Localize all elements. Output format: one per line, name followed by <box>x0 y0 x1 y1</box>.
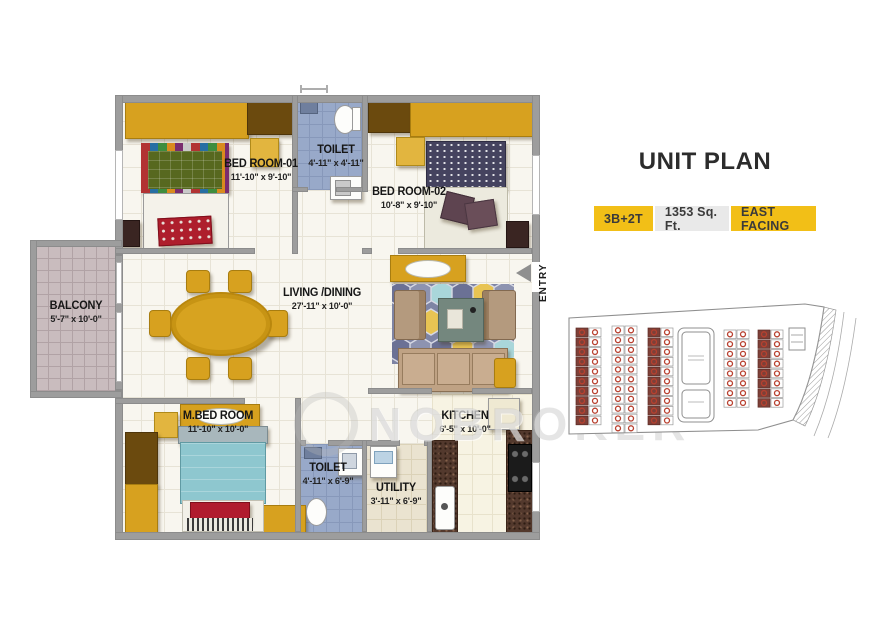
dimension-tick <box>300 88 328 90</box>
spec-badges: 3B+2T 1353 Sq. Ft. EAST FACING <box>594 206 816 231</box>
pillow-bedroom2-b <box>464 199 498 230</box>
pillow-bedroom1 <box>157 216 212 247</box>
info-panel: UNIT PLAN 3B+2T 1353 Sq. Ft. EAST FACING <box>594 148 816 231</box>
wall <box>368 388 432 394</box>
wardrobe-mbedroom-bottom <box>125 484 158 533</box>
dining-chair <box>186 357 210 380</box>
sofa <box>398 348 508 392</box>
wall <box>115 398 245 404</box>
balcony-wall <box>30 391 122 398</box>
label-kitchen: KITCHEN6'-5" x 10'-0" <box>427 410 503 435</box>
site-plan-svg <box>562 298 862 460</box>
dimension-tick <box>300 85 302 93</box>
coffee-table <box>438 298 484 342</box>
toilet1-cistern <box>352 107 361 131</box>
wall <box>115 248 255 254</box>
wall <box>115 390 123 540</box>
kitchen-sink <box>435 486 455 530</box>
site-small-block <box>789 328 805 350</box>
floor-plan: BED ROOM-0111'-10" x 9'-10" TOILET4'-11"… <box>0 0 560 640</box>
wall <box>472 388 532 394</box>
wall <box>115 95 540 103</box>
armchair-left <box>394 290 426 340</box>
badge-area: 1353 Sq. Ft. <box>655 206 729 231</box>
balcony-slider <box>116 262 122 304</box>
balcony-slider <box>116 312 122 382</box>
wall <box>300 440 306 446</box>
wardrobe-bedroom2-cabinet <box>368 98 412 133</box>
badge-facing: EAST FACING <box>731 206 816 231</box>
wall <box>115 532 540 540</box>
label-living: LIVING /DINING27'-11" x 10'-0" <box>275 287 370 312</box>
armchair-right <box>482 290 516 340</box>
washing-machine <box>370 446 397 478</box>
bed-mbedroom-quilt <box>180 442 266 504</box>
toilet2-wc <box>306 498 327 526</box>
label-toilet2: TOILET4'-11" x 6'-9" <box>290 462 366 487</box>
toilet2-shower <box>304 447 322 459</box>
dining-chair <box>186 270 210 293</box>
dimension-tick <box>326 85 328 93</box>
unit-plan-page: BED ROOM-0111'-10" x 9'-10" TOILET4'-11"… <box>0 0 878 640</box>
bed-mbedroom-fringe <box>187 518 253 531</box>
label-utility: UTILITY3'-11" x 6'-9" <box>358 482 434 507</box>
wardrobe-bedroom1-cabinet <box>247 100 293 135</box>
label-bedroom1: BED ROOM-0111'-10" x 9'-10" <box>214 158 309 183</box>
console-table-living <box>390 255 466 282</box>
nightstand-bedroom2 <box>396 137 425 166</box>
window <box>115 150 123 220</box>
label-toilet1: TOILET4'-11" x 4'-11" <box>298 144 374 169</box>
nightstand-bedroom2-right <box>506 221 529 248</box>
dining-chair <box>149 310 171 337</box>
balcony-wall <box>30 240 37 398</box>
window <box>532 155 540 215</box>
wardrobe-mbedroom-top <box>125 432 158 486</box>
wardrobe-bedroom2 <box>410 98 534 137</box>
wall <box>292 187 308 192</box>
wardrobe-bedroom1 <box>125 100 249 139</box>
end-table <box>494 358 516 388</box>
label-balcony: BALCONY5'-7" x 10'-0" <box>38 300 114 325</box>
stove <box>508 444 532 492</box>
wall <box>362 248 372 254</box>
window <box>532 462 540 512</box>
entry-label: ENTRY <box>538 252 549 302</box>
label-bedroom2: BED ROOM-0210'-8" x 9'-10" <box>357 186 462 211</box>
dining-chair <box>228 357 252 380</box>
label-mbedroom: M.BED ROOM11'-10" x 10'-0" <box>166 410 271 435</box>
balcony-wall <box>30 240 122 247</box>
badge-config: 3B+2T <box>594 206 653 231</box>
wall <box>366 440 400 446</box>
page-title: UNIT PLAN <box>594 148 816 176</box>
bed-bedroom2-blanket <box>426 141 506 190</box>
entry-arrow-icon <box>516 264 531 282</box>
wall <box>398 248 532 254</box>
dining-chair <box>228 270 252 293</box>
dining-table <box>170 292 272 356</box>
